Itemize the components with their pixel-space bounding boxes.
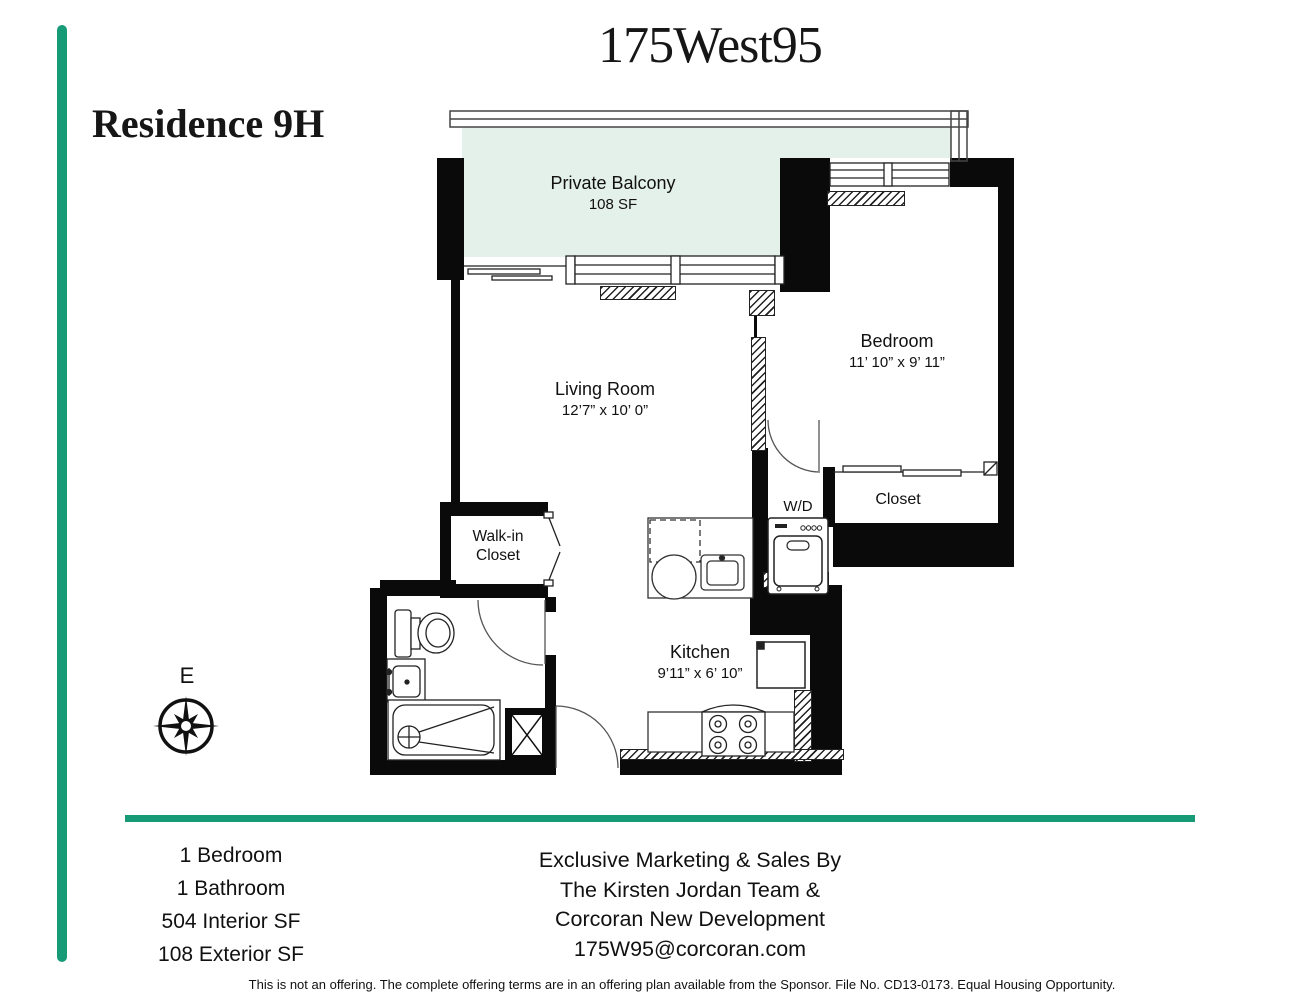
shaft-box (505, 708, 549, 762)
kitchen-label: Kitchen 9’11” x 6’ 10” (610, 641, 790, 683)
bathroom-sink (387, 659, 426, 702)
wall-bath-top (380, 580, 456, 596)
accent-divider-line (125, 815, 1195, 822)
wall-closet-bottom-block (833, 523, 1014, 567)
summary-line: 108 Exterior SF (106, 938, 356, 971)
corner-post-hatch (749, 290, 775, 316)
closet-label: Closet (858, 490, 938, 510)
wall-balcony-left-block (437, 158, 464, 280)
kitchen-counter (648, 712, 794, 752)
living-room-dims: 12’7” x 10’ 0” (505, 402, 705, 421)
bedroom-window-sill-hatch (827, 191, 905, 206)
wall-balcony-bedroom-separator (780, 158, 830, 292)
wall-bath-left (370, 588, 387, 775)
wall-kitchen-upper-right-block (750, 585, 842, 635)
balcony-name: Private Balcony (478, 172, 748, 195)
building-logo: 175West95 (460, 16, 960, 75)
toilet (395, 610, 454, 657)
wall-bedroom-right (998, 158, 1014, 567)
wall-bath-right-jamb (545, 597, 556, 612)
compass-direction-label: E (176, 662, 198, 690)
walk-in-closet-name-line1: Walk-in (452, 527, 544, 546)
living-room-name: Living Room (505, 378, 705, 401)
bedroom-name: Bedroom (797, 330, 997, 353)
balcony-area-right (780, 127, 951, 158)
summary-line: 1 Bathroom (106, 872, 356, 905)
bedroom-label: Bedroom 11’ 10” x 9’ 11” (797, 330, 997, 372)
wall-bath-bottom (370, 760, 556, 775)
kitchen-dims: 9’11” x 6’ 10” (610, 665, 790, 684)
marketing-line: The Kirsten Jordan Team & (440, 876, 940, 906)
marketing-line: Corcoran New Development (440, 905, 940, 935)
summary-line: 1 Bedroom (106, 839, 356, 872)
unit-summary: 1 Bedroom 1 Bathroom 504 Interior SF 108… (106, 839, 356, 971)
compass-rose (153, 696, 219, 756)
page: 175West95 Residence 9H (0, 0, 1294, 1000)
tub-threshold-hatch (400, 700, 447, 712)
left-window (464, 266, 566, 280)
bedroom-dims: 11’ 10” x 9’ 11” (797, 354, 997, 373)
wall-wic-top (440, 502, 548, 516)
kitchen-counter-edge-hatch (620, 749, 844, 760)
wall-wic-bottom (440, 584, 548, 598)
kitchen-name: Kitchen (610, 641, 790, 664)
living-window-sill-hatch (600, 286, 676, 300)
living-room-label: Living Room 12’7” x 10’ 0” (505, 378, 705, 420)
kitchen-peninsula (648, 518, 753, 599)
living-room-window (566, 256, 784, 284)
balcony-area-text: 108 SF (478, 196, 748, 215)
wall-living-left (451, 280, 460, 508)
walk-in-closet-name-line2: Closet (452, 546, 544, 565)
bedroom-window (830, 163, 949, 186)
marketing-line: Exclusive Marketing & Sales By (440, 846, 940, 876)
glass-partition-hatch (751, 337, 766, 451)
residence-title: Residence 9H (92, 100, 324, 147)
walk-in-closet-bifold-door (544, 512, 560, 586)
marketing-block: Exclusive Marketing & Sales By The Kirst… (440, 846, 940, 964)
marketing-line: 175W95@corcoran.com (440, 935, 940, 965)
balcony-label: Private Balcony 108 SF (478, 172, 748, 214)
disclaimer-text: This is not an offering. The complete of… (70, 977, 1294, 992)
closet-sliding-doors (833, 462, 997, 476)
wall-kitchen-right (810, 635, 842, 760)
shaft-x-icon (512, 715, 542, 755)
wd-label: W/D (768, 498, 828, 517)
walk-in-closet-label: Walk-in Closet (452, 527, 544, 566)
wd-threshold-hatch (763, 572, 829, 588)
accent-vertical-bar (57, 25, 67, 962)
wall-wd-closet-divider (823, 467, 835, 527)
summary-line: 504 Interior SF (106, 905, 356, 938)
